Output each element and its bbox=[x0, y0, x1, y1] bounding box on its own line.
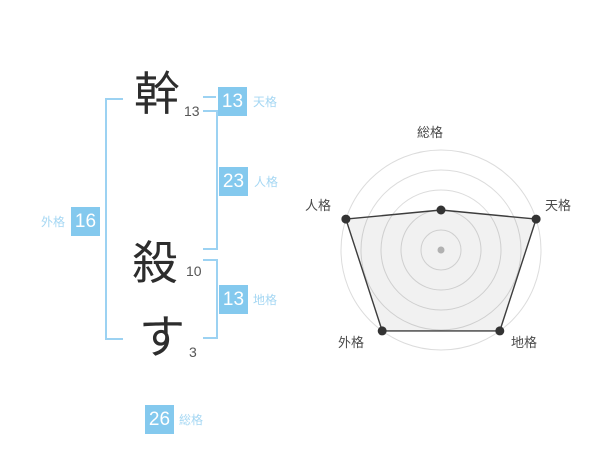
radar-vertex-総格 bbox=[437, 206, 446, 215]
jinkaku-value-badge: 23 bbox=[219, 167, 248, 196]
stroke-count-3: 3 bbox=[189, 345, 197, 359]
name-fortune-panel: 幹 13 殺 10 す 3 13 天格 23 人格 13 地格 外格 16 26… bbox=[0, 0, 600, 470]
radar-vertex-外格 bbox=[378, 326, 387, 335]
soukaku-value-badge: 26 bbox=[145, 405, 174, 434]
stroke-count-2: 10 bbox=[186, 264, 202, 278]
name-char-1: 幹 bbox=[134, 71, 180, 117]
stroke-count-1: 13 bbox=[184, 104, 200, 118]
chikaku-value-badge: 13 bbox=[219, 285, 248, 314]
radar-chart: 総格天格地格外格人格 bbox=[296, 110, 586, 360]
radar-axis-label-地格: 地格 bbox=[511, 335, 537, 350]
radar-vertex-地格 bbox=[495, 326, 504, 335]
chikaku-label: 地格 bbox=[253, 294, 277, 306]
radar-vertex-人格 bbox=[341, 215, 350, 224]
gaikaku-bracket bbox=[105, 98, 123, 340]
tenkaku-value-badge: 13 bbox=[218, 87, 247, 116]
radar-axis-label-総格: 総格 bbox=[417, 125, 443, 140]
radar-axis-label-天格: 天格 bbox=[545, 198, 571, 213]
gaikaku-label: 外格 bbox=[41, 216, 65, 228]
jinkaku-bracket bbox=[203, 110, 218, 250]
radar-vertex-天格 bbox=[532, 215, 541, 224]
name-char-2: 殺 bbox=[132, 240, 178, 286]
soukaku-label: 総格 bbox=[179, 414, 203, 426]
tenkaku-label: 天格 bbox=[253, 96, 277, 108]
radar-axis-label-外格: 外格 bbox=[338, 335, 364, 350]
name-char-3: す bbox=[139, 314, 185, 360]
chikaku-bracket bbox=[203, 259, 218, 339]
jinkaku-label: 人格 bbox=[254, 176, 278, 188]
gaikaku-value-badge: 16 bbox=[71, 207, 100, 236]
tenkaku-dash bbox=[203, 96, 216, 98]
radar-axis-label-人格: 人格 bbox=[305, 198, 331, 213]
